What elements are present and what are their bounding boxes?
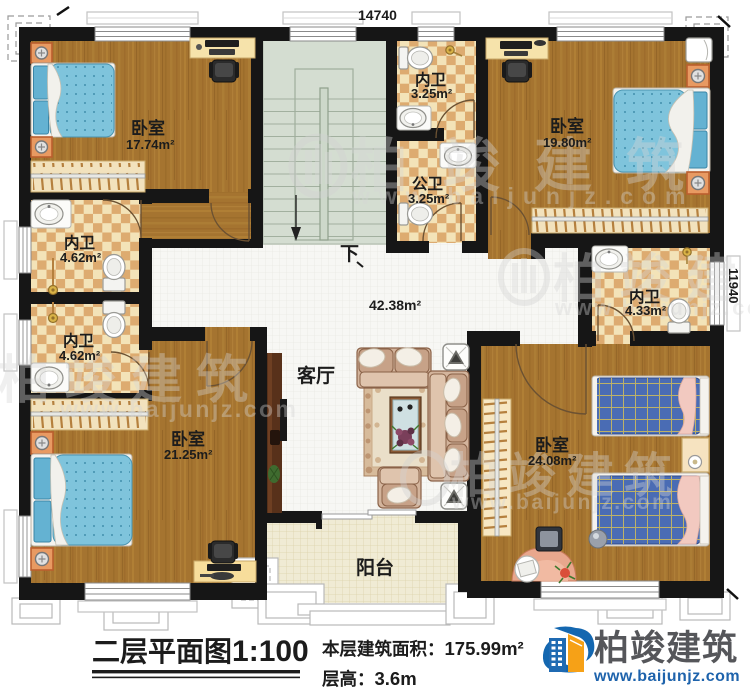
svg-text:4.33m²: 4.33m² <box>625 303 667 318</box>
svg-text:柏竣建筑: 柏竣建筑 <box>594 628 738 668</box>
svg-text:4.62m²: 4.62m² <box>60 250 102 265</box>
svg-text:www.baijunjz.com: www.baijunjz.com <box>451 491 673 514</box>
svg-text:本层建筑面积：175.99m²: 本层建筑面积：175.99m² <box>322 638 524 659</box>
svg-text:3.25m²: 3.25m² <box>411 86 453 101</box>
svg-text:17.74m²: 17.74m² <box>126 137 175 152</box>
svg-text:11940: 11940 <box>726 268 741 303</box>
svg-text:19.80m²: 19.80m² <box>543 135 592 150</box>
svg-text:卧室: 卧室 <box>550 116 584 136</box>
svg-text:二层平面图1:100: 二层平面图1:100 <box>92 635 309 668</box>
svg-text:卧室: 卧室 <box>535 435 569 455</box>
svg-text:阳台: 阳台 <box>356 556 394 579</box>
svg-text:4.62m²: 4.62m² <box>59 348 101 363</box>
svg-text:42.38m²: 42.38m² <box>369 297 421 313</box>
svg-text:24.08m²: 24.08m² <box>528 453 577 468</box>
svg-text:下: 下 <box>340 244 359 265</box>
svg-text:卧室: 卧室 <box>131 118 165 138</box>
svg-text:卧室: 卧室 <box>171 429 205 449</box>
svg-text:14740: 14740 <box>358 7 397 23</box>
svg-text:www.baijunjz.com: www.baijunjz.com <box>59 396 299 422</box>
svg-text:www.baijunjz.com: www.baijunjz.com <box>351 183 695 209</box>
svg-text:3.25m²: 3.25m² <box>408 191 450 206</box>
svg-text:层高：3.6m: 层高：3.6m <box>322 668 417 689</box>
svg-text:客厅: 客厅 <box>297 364 335 387</box>
svg-text:21.25m²: 21.25m² <box>164 447 213 462</box>
svg-text:www.baijunjz.com: www.baijunjz.com <box>593 668 740 685</box>
